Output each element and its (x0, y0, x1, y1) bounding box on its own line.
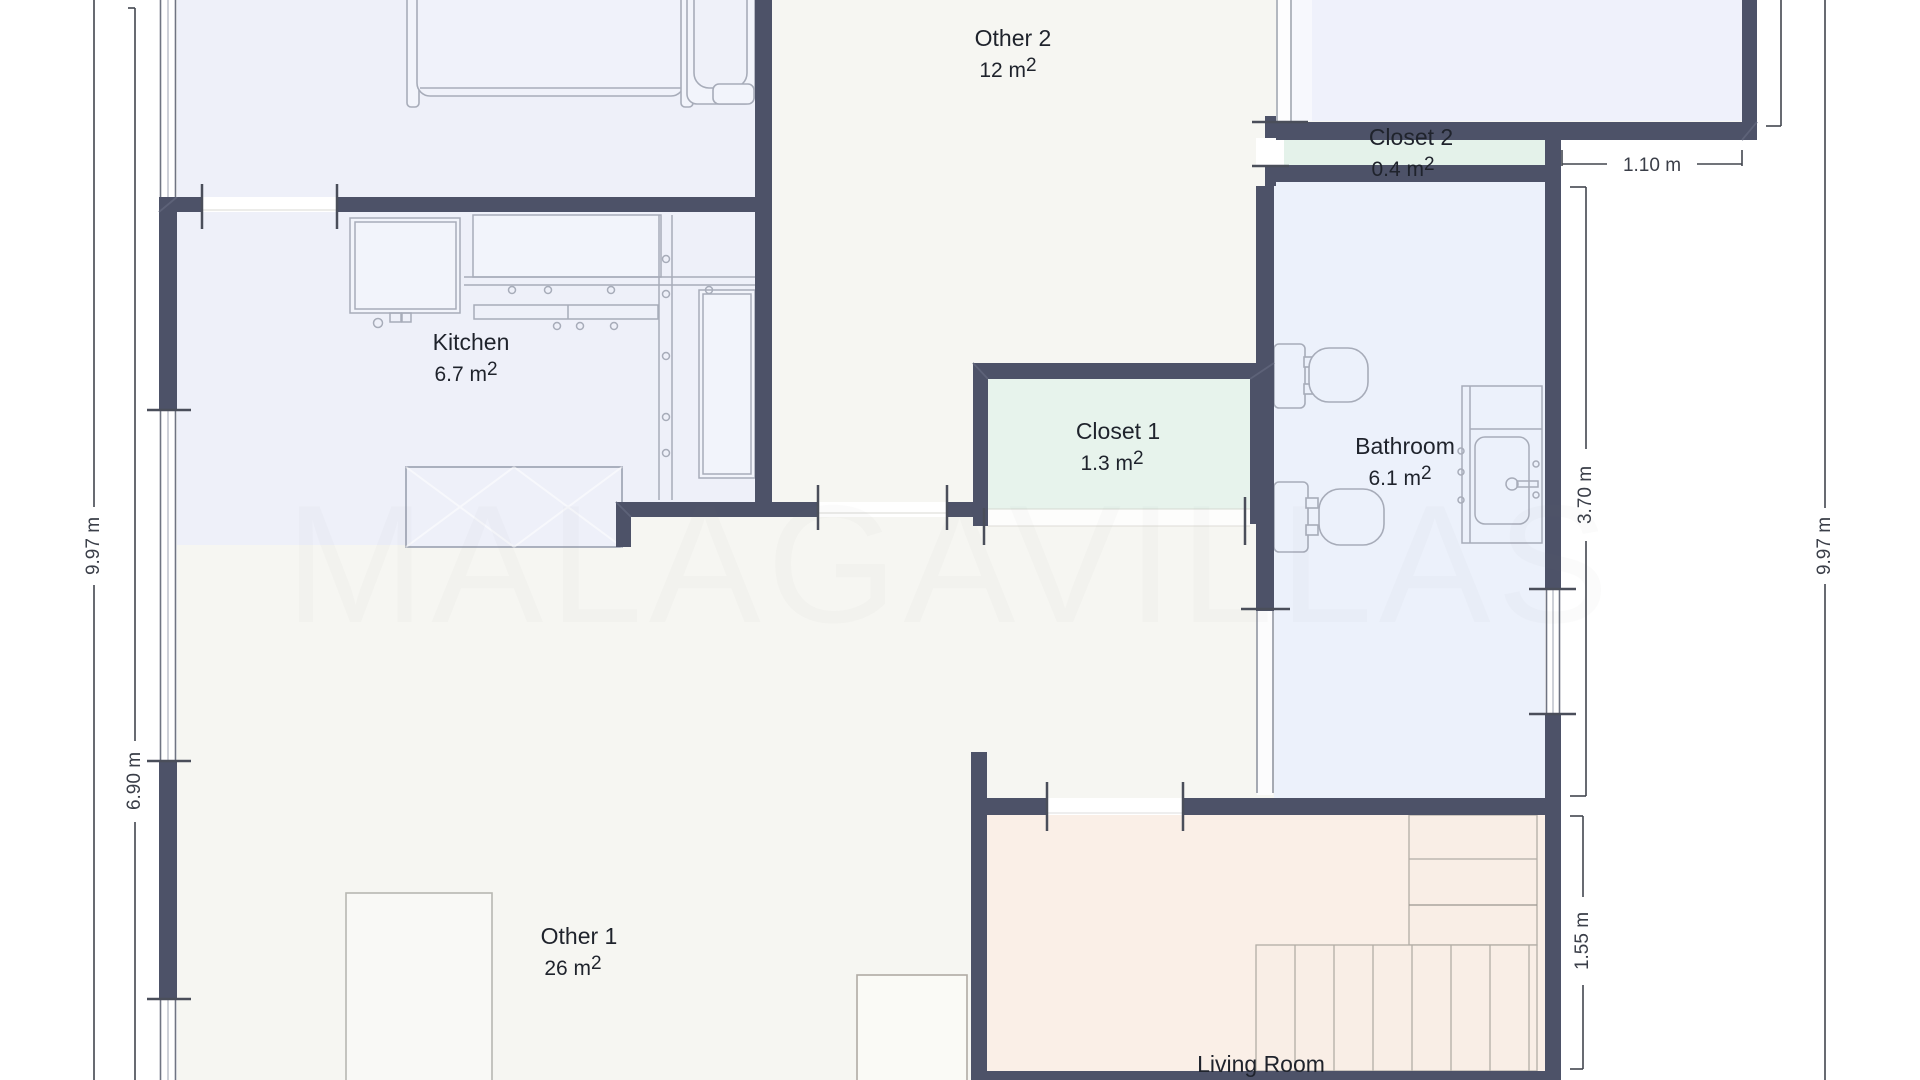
svg-text:Other 1: Other 1 (541, 923, 618, 949)
svg-text:MALAGAVILLAS: MALAGAVILLAS (285, 470, 1614, 658)
svg-text:Living Room: Living Room (1197, 1051, 1325, 1077)
svg-text:6.90 m: 6.90 m (124, 752, 145, 810)
svg-text:Bathroom: Bathroom (1355, 433, 1455, 459)
svg-text:Kitchen: Kitchen (433, 329, 510, 355)
svg-text:Closet 1: Closet 1 (1076, 418, 1160, 444)
svg-text:Closet 2: Closet 2 (1369, 124, 1453, 150)
svg-text:9.97 m: 9.97 m (1814, 517, 1835, 575)
svg-text:9.97 m: 9.97 m (83, 517, 104, 575)
svg-text:1.55 m: 1.55 m (1572, 912, 1593, 970)
svg-text:1.10 m: 1.10 m (1623, 155, 1681, 176)
svg-text:Other 2: Other 2 (975, 25, 1052, 51)
